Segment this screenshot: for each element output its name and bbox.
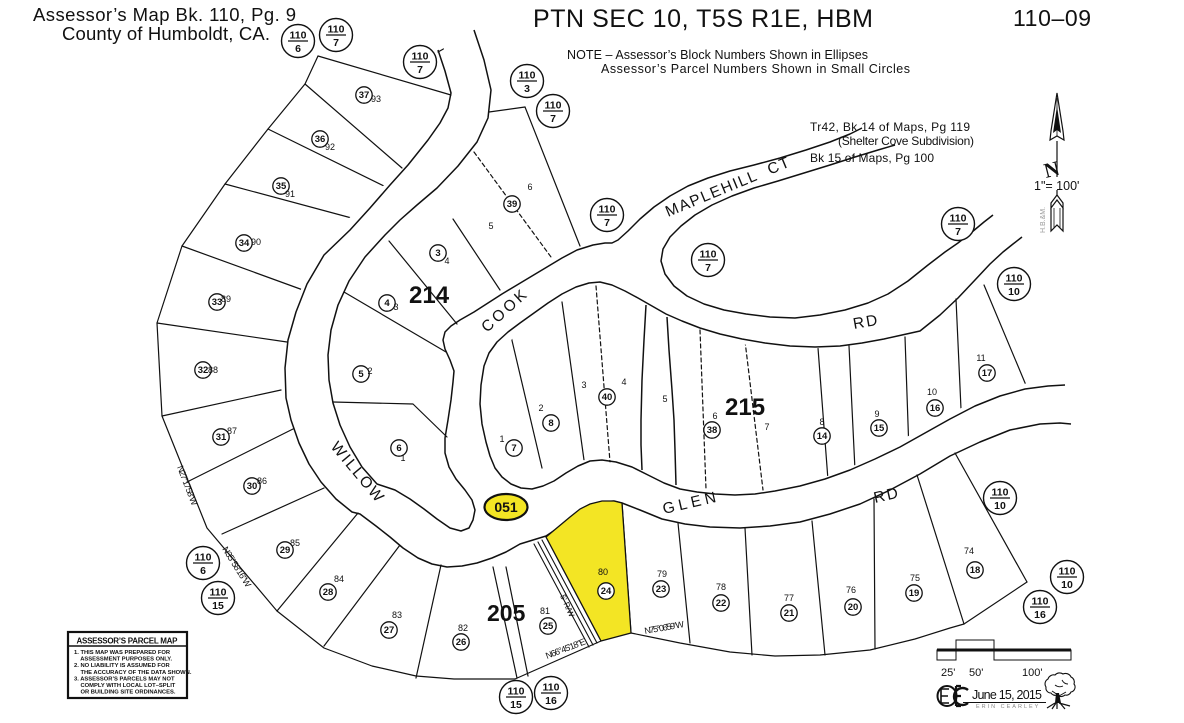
svg-text:ERIN CEARLEY: ERIN CEARLEY (976, 704, 1040, 710)
svg-text:15: 15 (510, 699, 522, 711)
svg-text:86: 86 (257, 476, 267, 486)
svg-text:214: 214 (409, 282, 450, 309)
svg-text:16: 16 (930, 403, 941, 414)
svg-text:1"= 100': 1"= 100' (1034, 179, 1079, 193)
svg-text:40: 40 (602, 392, 613, 403)
svg-text:7: 7 (511, 443, 516, 454)
svg-text:80: 80 (598, 567, 608, 577)
svg-text:92: 92 (325, 142, 335, 152)
svg-text:7: 7 (604, 217, 610, 229)
svg-text:88: 88 (208, 365, 218, 375)
svg-text:18: 18 (970, 565, 981, 576)
svg-text:110: 110 (1059, 566, 1076, 578)
svg-text:110: 110 (545, 100, 562, 112)
svg-text:7: 7 (955, 226, 961, 238)
svg-text:30: 30 (247, 481, 258, 492)
svg-text:50': 50' (969, 667, 983, 679)
svg-text:110: 110 (328, 24, 345, 36)
svg-text:7: 7 (550, 113, 556, 125)
svg-text:37: 37 (359, 90, 370, 101)
svg-text:10: 10 (1008, 286, 1020, 298)
svg-text:11: 11 (976, 353, 985, 363)
svg-text:5: 5 (358, 369, 364, 380)
svg-text:Tr42, Bk 14 of Maps, Pg 119: Tr42, Bk 14 of Maps, Pg 119 (810, 120, 970, 134)
svg-text:36: 36 (315, 134, 326, 145)
svg-text:4: 4 (384, 298, 390, 309)
svg-text:June 15, 2015: June 15, 2015 (972, 688, 1042, 702)
svg-text:1: 1 (499, 434, 504, 444)
svg-text:NOTE – Assessor’s Block Number: NOTE – Assessor’s Block Numbers Shown in… (567, 48, 868, 62)
svg-text:32: 32 (198, 365, 209, 376)
svg-text:1: 1 (400, 453, 405, 463)
svg-text:6: 6 (527, 182, 532, 192)
svg-text:6: 6 (712, 411, 717, 421)
svg-text:20: 20 (848, 602, 859, 613)
svg-text:OR BUILDING SITE ORDINANCES.: OR BUILDING SITE ORDINANCES. (74, 690, 176, 696)
svg-text:110: 110 (950, 213, 967, 225)
svg-text:6: 6 (200, 565, 206, 577)
svg-text:25': 25' (941, 667, 955, 679)
svg-text:100': 100' (1022, 667, 1042, 679)
svg-text:3: 3 (393, 302, 398, 312)
svg-text:91: 91 (285, 189, 295, 199)
svg-text:110: 110 (1006, 273, 1023, 285)
svg-text:28: 28 (323, 587, 334, 598)
svg-text:110: 110 (1032, 596, 1049, 608)
svg-text:110: 110 (412, 51, 429, 63)
svg-text:7: 7 (417, 64, 423, 76)
svg-text:83: 83 (392, 610, 402, 620)
svg-text:82: 82 (458, 623, 468, 633)
svg-text:3. ASSESSOR’S PARCELS MAY NOT: 3. ASSESSOR’S PARCELS MAY NOT (74, 676, 175, 682)
svg-text:7: 7 (705, 262, 711, 274)
svg-text:74: 74 (964, 546, 974, 556)
svg-text:4: 4 (444, 256, 449, 266)
svg-text:Bk 15 of Maps, Pg 100: Bk 15 of Maps, Pg 100 (810, 151, 934, 165)
svg-text:(Shelter Cove Subdivision): (Shelter Cove Subdivision) (838, 134, 974, 148)
svg-text:H.B.&M.: H.B.&M. (1040, 207, 1047, 233)
svg-text:3: 3 (524, 83, 530, 95)
svg-text:ASSESSMENT PURPOSES ONLY.: ASSESSMENT PURPOSES ONLY. (74, 657, 173, 663)
svg-text:16: 16 (1034, 609, 1046, 621)
svg-text:23: 23 (656, 584, 667, 595)
svg-text:Assessor’s Map Bk. 110, Pg. 9: Assessor’s Map Bk. 110, Pg. 9 (33, 4, 296, 25)
svg-text:205: 205 (487, 600, 526, 626)
svg-text:110: 110 (543, 682, 560, 694)
svg-text:15: 15 (212, 600, 224, 612)
svg-text:10: 10 (1061, 579, 1073, 591)
svg-text:2: 2 (538, 403, 543, 413)
svg-text:24: 24 (601, 586, 612, 597)
svg-text:110: 110 (195, 552, 212, 564)
svg-text:9: 9 (874, 409, 879, 419)
svg-text:85: 85 (290, 538, 300, 548)
svg-text:15: 15 (874, 423, 885, 434)
svg-text:110: 110 (700, 249, 717, 261)
svg-text:93: 93 (371, 94, 381, 104)
svg-text:THE ACCURACY OF THE DATA SHOWN: THE ACCURACY OF THE DATA SHOWN. (74, 670, 192, 676)
svg-text:5: 5 (662, 394, 667, 404)
svg-text:14: 14 (817, 431, 828, 442)
svg-text:110: 110 (992, 487, 1009, 499)
svg-text:34: 34 (239, 238, 250, 249)
svg-text:110: 110 (519, 70, 536, 82)
svg-text:215: 215 (725, 394, 765, 421)
svg-text:17: 17 (982, 368, 993, 379)
svg-text:78: 78 (716, 582, 726, 592)
svg-text:7: 7 (764, 422, 769, 432)
svg-text:75: 75 (910, 573, 920, 583)
svg-text:110: 110 (210, 587, 227, 599)
svg-text:21: 21 (784, 608, 795, 619)
svg-text:89: 89 (221, 294, 231, 304)
svg-text:110–09: 110–09 (1013, 5, 1091, 31)
svg-text:4: 4 (621, 377, 626, 387)
svg-text:110: 110 (290, 30, 307, 42)
svg-text:29: 29 (280, 545, 291, 556)
svg-text:Assessor’s Parcel Numbers Show: Assessor’s Parcel Numbers Shown in Small… (601, 62, 910, 76)
svg-text:16: 16 (545, 695, 557, 707)
svg-text:3: 3 (435, 248, 440, 259)
svg-text:10: 10 (927, 387, 937, 397)
svg-text:6: 6 (295, 43, 301, 55)
svg-text:110: 110 (599, 204, 616, 216)
svg-text:84: 84 (334, 574, 344, 584)
svg-text:051: 051 (494, 499, 518, 515)
svg-text:77: 77 (784, 593, 794, 603)
svg-text:19: 19 (909, 588, 920, 599)
svg-text:79: 79 (657, 569, 667, 579)
svg-text:7: 7 (333, 37, 339, 49)
svg-text:10: 10 (994, 500, 1006, 512)
svg-text:22: 22 (716, 598, 727, 609)
svg-text:26: 26 (456, 637, 467, 648)
svg-text:38: 38 (707, 425, 718, 436)
svg-text:1. THIS MAP WAS PREPARED FOR: 1. THIS MAP WAS PREPARED FOR (74, 650, 171, 656)
svg-text:31: 31 (216, 432, 227, 443)
svg-text:3: 3 (581, 380, 586, 390)
svg-text:27: 27 (384, 625, 395, 636)
svg-text:90: 90 (251, 237, 261, 247)
svg-text:COMPLY WITH LOCAL LOT–SPLIT: COMPLY WITH LOCAL LOT–SPLIT (74, 683, 176, 689)
svg-text:ASSESSOR’S PARCEL MAP: ASSESSOR’S PARCEL MAP (77, 637, 179, 646)
svg-text:8: 8 (819, 417, 824, 427)
svg-text:2. NO LIABILITY IS ASSUMED FOR: 2. NO LIABILITY IS ASSUMED FOR (74, 663, 170, 669)
svg-text:76: 76 (846, 585, 856, 595)
svg-text:2: 2 (367, 366, 372, 376)
svg-text:8: 8 (548, 418, 553, 429)
svg-text:81: 81 (540, 606, 550, 616)
svg-text:5: 5 (488, 221, 493, 231)
svg-text:39: 39 (507, 199, 518, 210)
svg-text:PTN SEC 10, T5S R1E, HBM: PTN SEC 10, T5S R1E, HBM (533, 5, 873, 33)
svg-text:County of Humboldt, CA.: County of Humboldt, CA. (62, 23, 270, 44)
svg-text:110: 110 (508, 686, 525, 698)
svg-text:25: 25 (543, 621, 554, 632)
svg-text:87: 87 (227, 426, 237, 436)
